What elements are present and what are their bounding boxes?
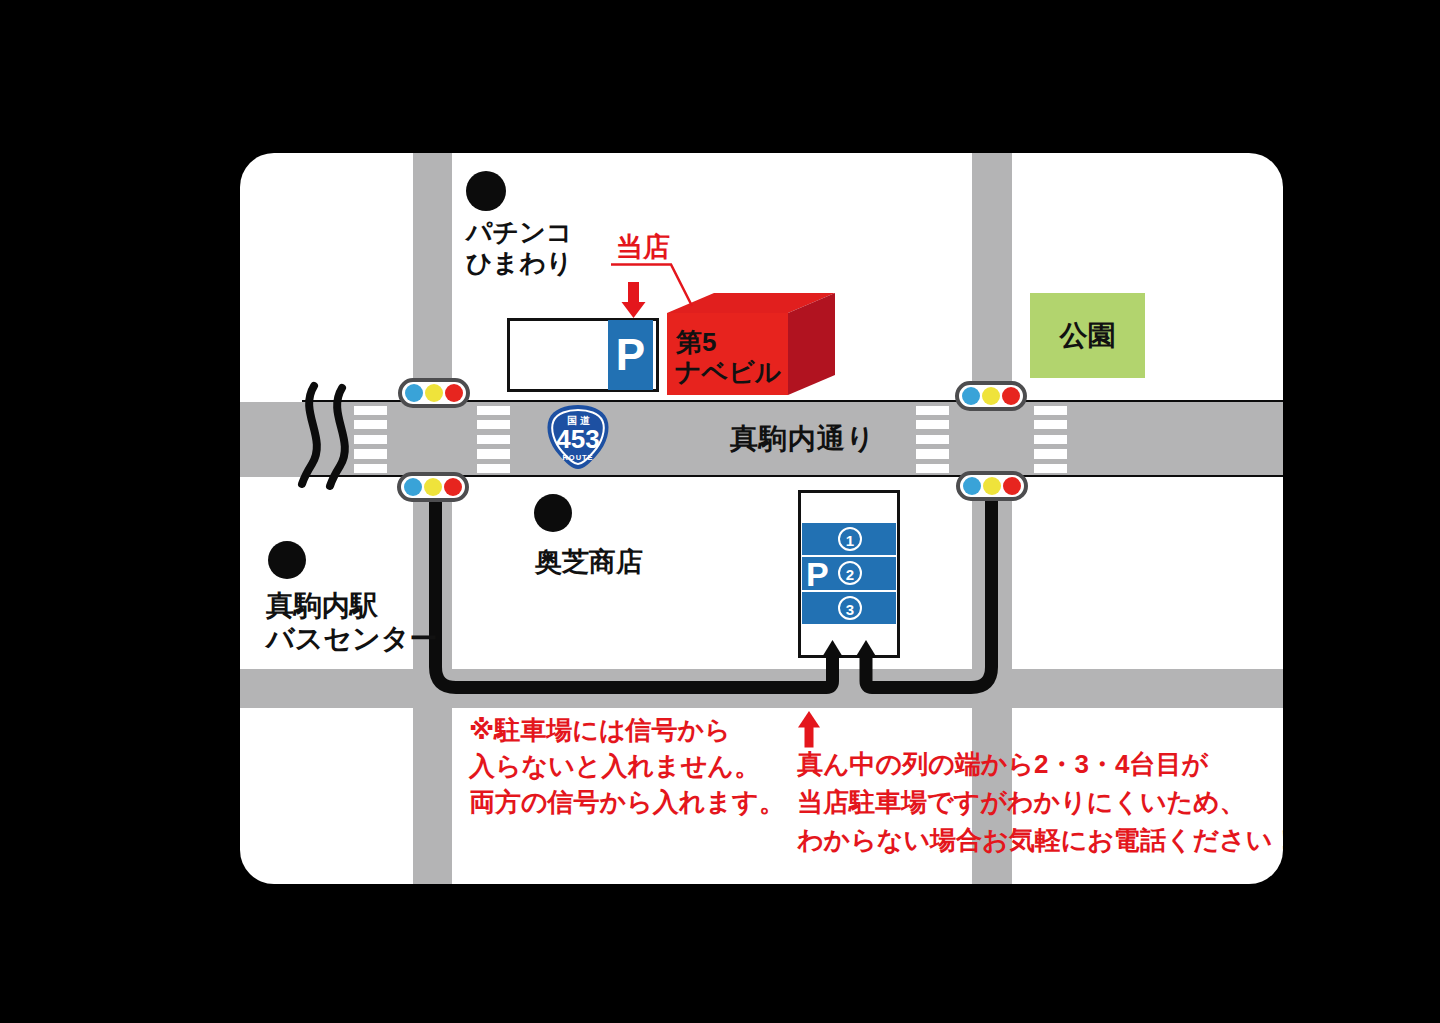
note-left-line3: 両方の信号から入れます。 — [469, 784, 785, 820]
note-right-line1: 真ん中の列の端から2・3・4台目が — [797, 745, 1283, 783]
note-right-line2: 当店駐車場ですがわかりにくいため、 — [797, 783, 1283, 821]
note-left-line2: 入らないと入れません。 — [469, 748, 785, 784]
shop-callout-pointer-line — [611, 265, 692, 307]
shop-callout-down-arrow — [628, 282, 639, 303]
note-left: ※駐車場には信号から 入らないと入れません。 両方の信号から入れます。 — [469, 712, 785, 820]
note-right: 真ん中の列の端から2・3・4台目が 当店駐車場ですがわかりにくいため、 わからな… — [797, 745, 1283, 859]
shop-callout-down-arrowhead — [622, 302, 646, 318]
map-panel: 公園 P 第5 ナベビル 国道 453 ROUTE 真駒内通り 1 P 2 3 — [240, 153, 1283, 884]
shop-callout-label: 当店 — [616, 229, 670, 265]
note-up-arrowhead — [798, 711, 820, 728]
note-right-line3: わからない場合お気軽にお電話ください！ — [797, 821, 1283, 859]
note-left-line1: ※駐車場には信号から — [469, 712, 785, 748]
